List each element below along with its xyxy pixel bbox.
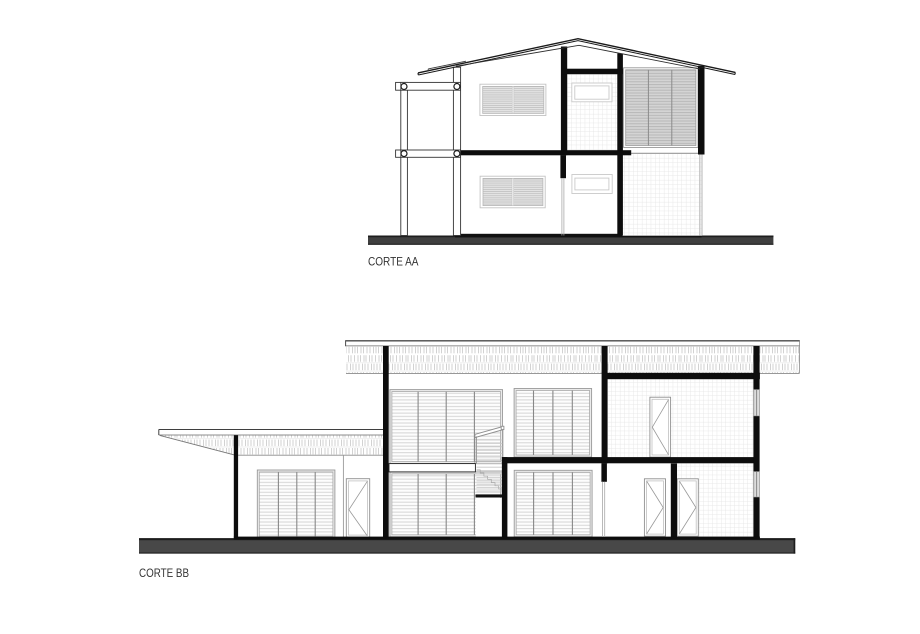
svg-text:CORTE AA: CORTE AA [368, 255, 419, 268]
svg-text:CORTE BB: CORTE BB [139, 567, 189, 580]
